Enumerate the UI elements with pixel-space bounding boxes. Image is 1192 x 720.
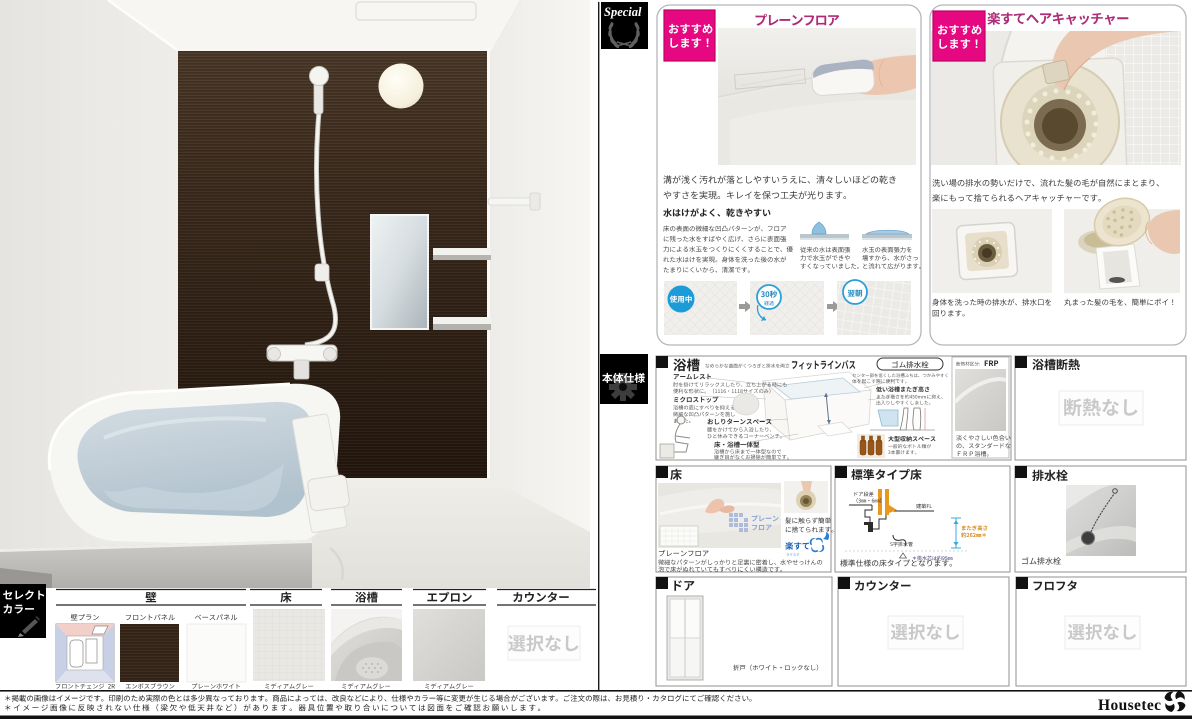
svg-text:Housetec: Housetec: [1098, 697, 1161, 714]
svg-text:Special: Special: [604, 5, 642, 19]
